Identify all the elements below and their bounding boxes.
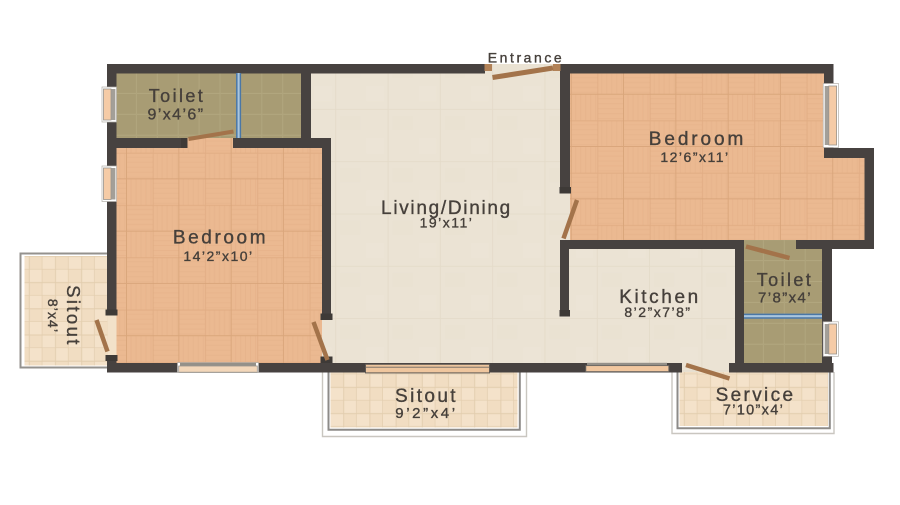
svg-text:Toilet: Toilet [757, 270, 813, 290]
svg-text:12’6”x11’: 12’6”x11’ [660, 149, 729, 165]
svg-text:19’x11’: 19’x11’ [420, 215, 474, 231]
svg-text:9’2”x4’: 9’2”x4’ [395, 405, 457, 422]
svg-text:Sitout: Sitout [395, 386, 458, 407]
svg-text:7’8”x4’: 7’8”x4’ [758, 290, 812, 307]
svg-text:14’2”x10’: 14’2”x10’ [183, 248, 253, 264]
svg-text:Bedroom: Bedroom [173, 228, 268, 249]
svg-text:Toilet: Toilet [149, 86, 205, 106]
svg-text:8’2”x7’8”: 8’2”x7’8” [624, 304, 691, 320]
svg-text:Bedroom: Bedroom [649, 129, 746, 150]
svg-text:9’x4’6”: 9’x4’6” [148, 107, 205, 124]
svg-text:Entrance: Entrance [488, 50, 564, 66]
svg-text:8’x4’: 8’x4’ [45, 299, 61, 333]
svg-text:Sitout: Sitout [63, 285, 84, 347]
svg-text:7’10”x4’: 7’10”x4’ [723, 403, 784, 419]
